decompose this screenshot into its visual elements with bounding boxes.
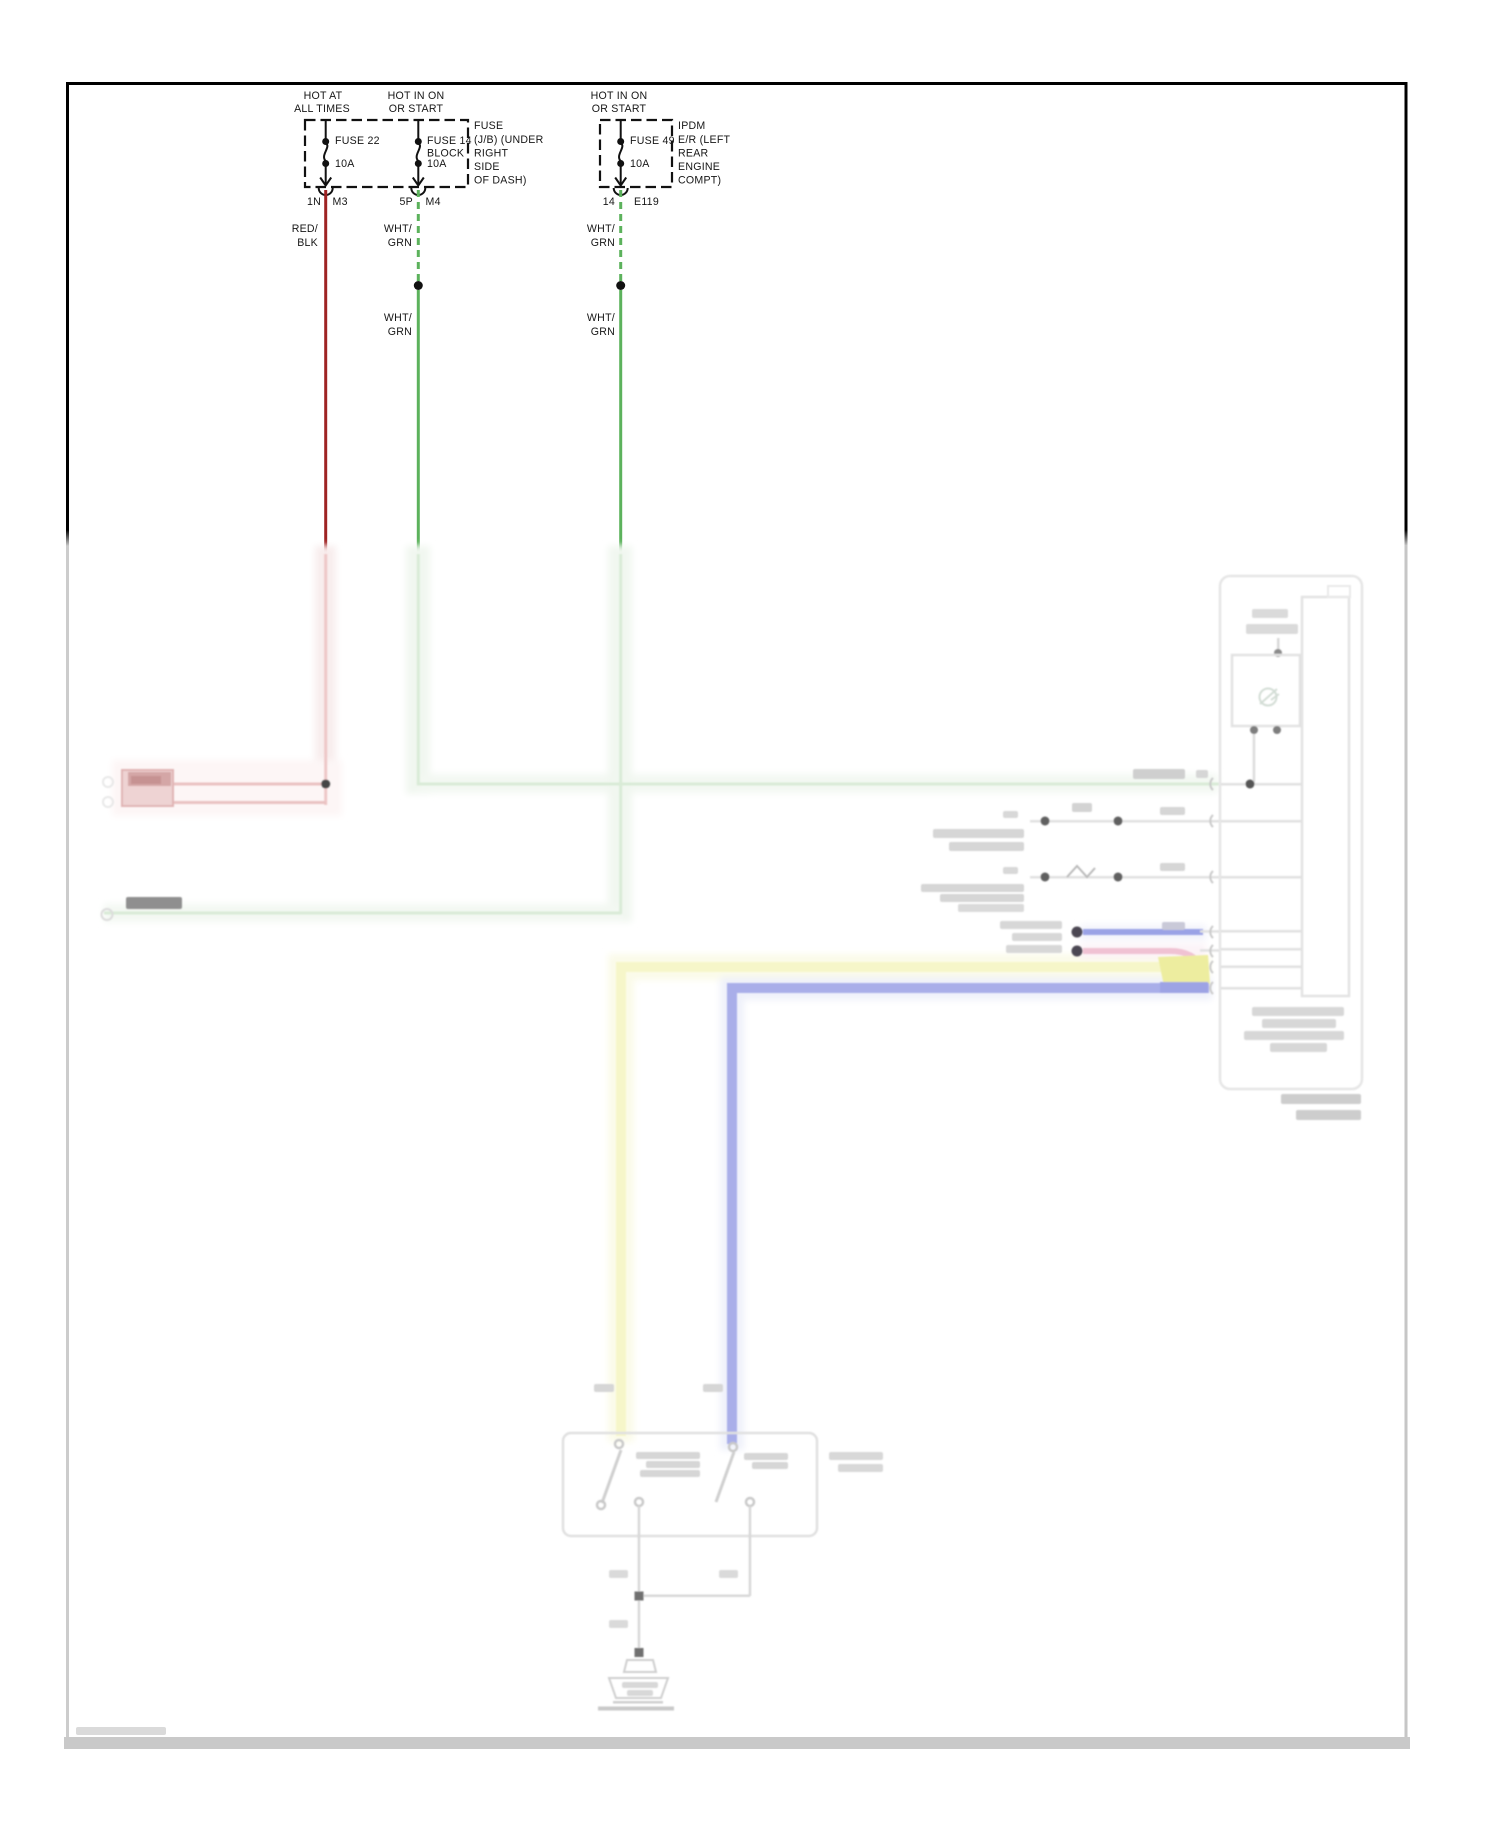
svg-text:M4: M4	[426, 196, 441, 208]
svg-text:M3: M3	[333, 196, 348, 208]
svg-text:REAR: REAR	[678, 148, 709, 160]
svg-text:RIGHT: RIGHT	[474, 148, 508, 160]
svg-text:RED/: RED/	[292, 223, 318, 235]
svg-text:(J/B) (UNDER: (J/B) (UNDER	[474, 134, 544, 146]
svg-text:14: 14	[603, 196, 615, 208]
svg-text:GRN: GRN	[591, 326, 615, 338]
svg-text:10A: 10A	[630, 158, 650, 170]
svg-text:GRN: GRN	[388, 326, 412, 338]
svg-text:5P: 5P	[400, 196, 413, 208]
svg-text:FUSE: FUSE	[474, 120, 503, 132]
svg-text:WHT/: WHT/	[587, 312, 615, 324]
svg-text:E119: E119	[634, 196, 659, 208]
svg-text:10A: 10A	[427, 158, 447, 170]
svg-text:ENGINE: ENGINE	[678, 161, 720, 173]
svg-text:HOT IN ON: HOT IN ON	[388, 90, 445, 102]
svg-text:E/R (LEFT: E/R (LEFT	[678, 134, 731, 146]
svg-text:GRN: GRN	[591, 237, 615, 249]
svg-text:BLK: BLK	[297, 237, 318, 249]
svg-text:WHT/: WHT/	[587, 223, 615, 235]
svg-text:GRN: GRN	[388, 237, 412, 249]
svg-text:IPDM: IPDM	[678, 120, 705, 132]
svg-text:FUSE 14: FUSE 14	[427, 135, 472, 147]
svg-text:1N: 1N	[307, 196, 321, 208]
svg-text:10A: 10A	[335, 158, 355, 170]
svg-text:FUSE 49: FUSE 49	[630, 135, 675, 147]
svg-text:HOT IN ON: HOT IN ON	[591, 90, 648, 102]
svg-text:COMPT): COMPT)	[678, 175, 721, 187]
svg-text:ALL TIMES: ALL TIMES	[294, 103, 350, 115]
svg-text:WHT/: WHT/	[384, 312, 412, 324]
svg-text:OR START: OR START	[389, 103, 444, 115]
svg-text:SIDE: SIDE	[474, 161, 500, 173]
svg-text:WHT/: WHT/	[384, 223, 412, 235]
svg-text:OR START: OR START	[592, 103, 647, 115]
svg-text:OF DASH): OF DASH)	[474, 175, 527, 187]
svg-text:HOT AT: HOT AT	[304, 90, 343, 102]
svg-text:FUSE 22: FUSE 22	[335, 135, 380, 147]
